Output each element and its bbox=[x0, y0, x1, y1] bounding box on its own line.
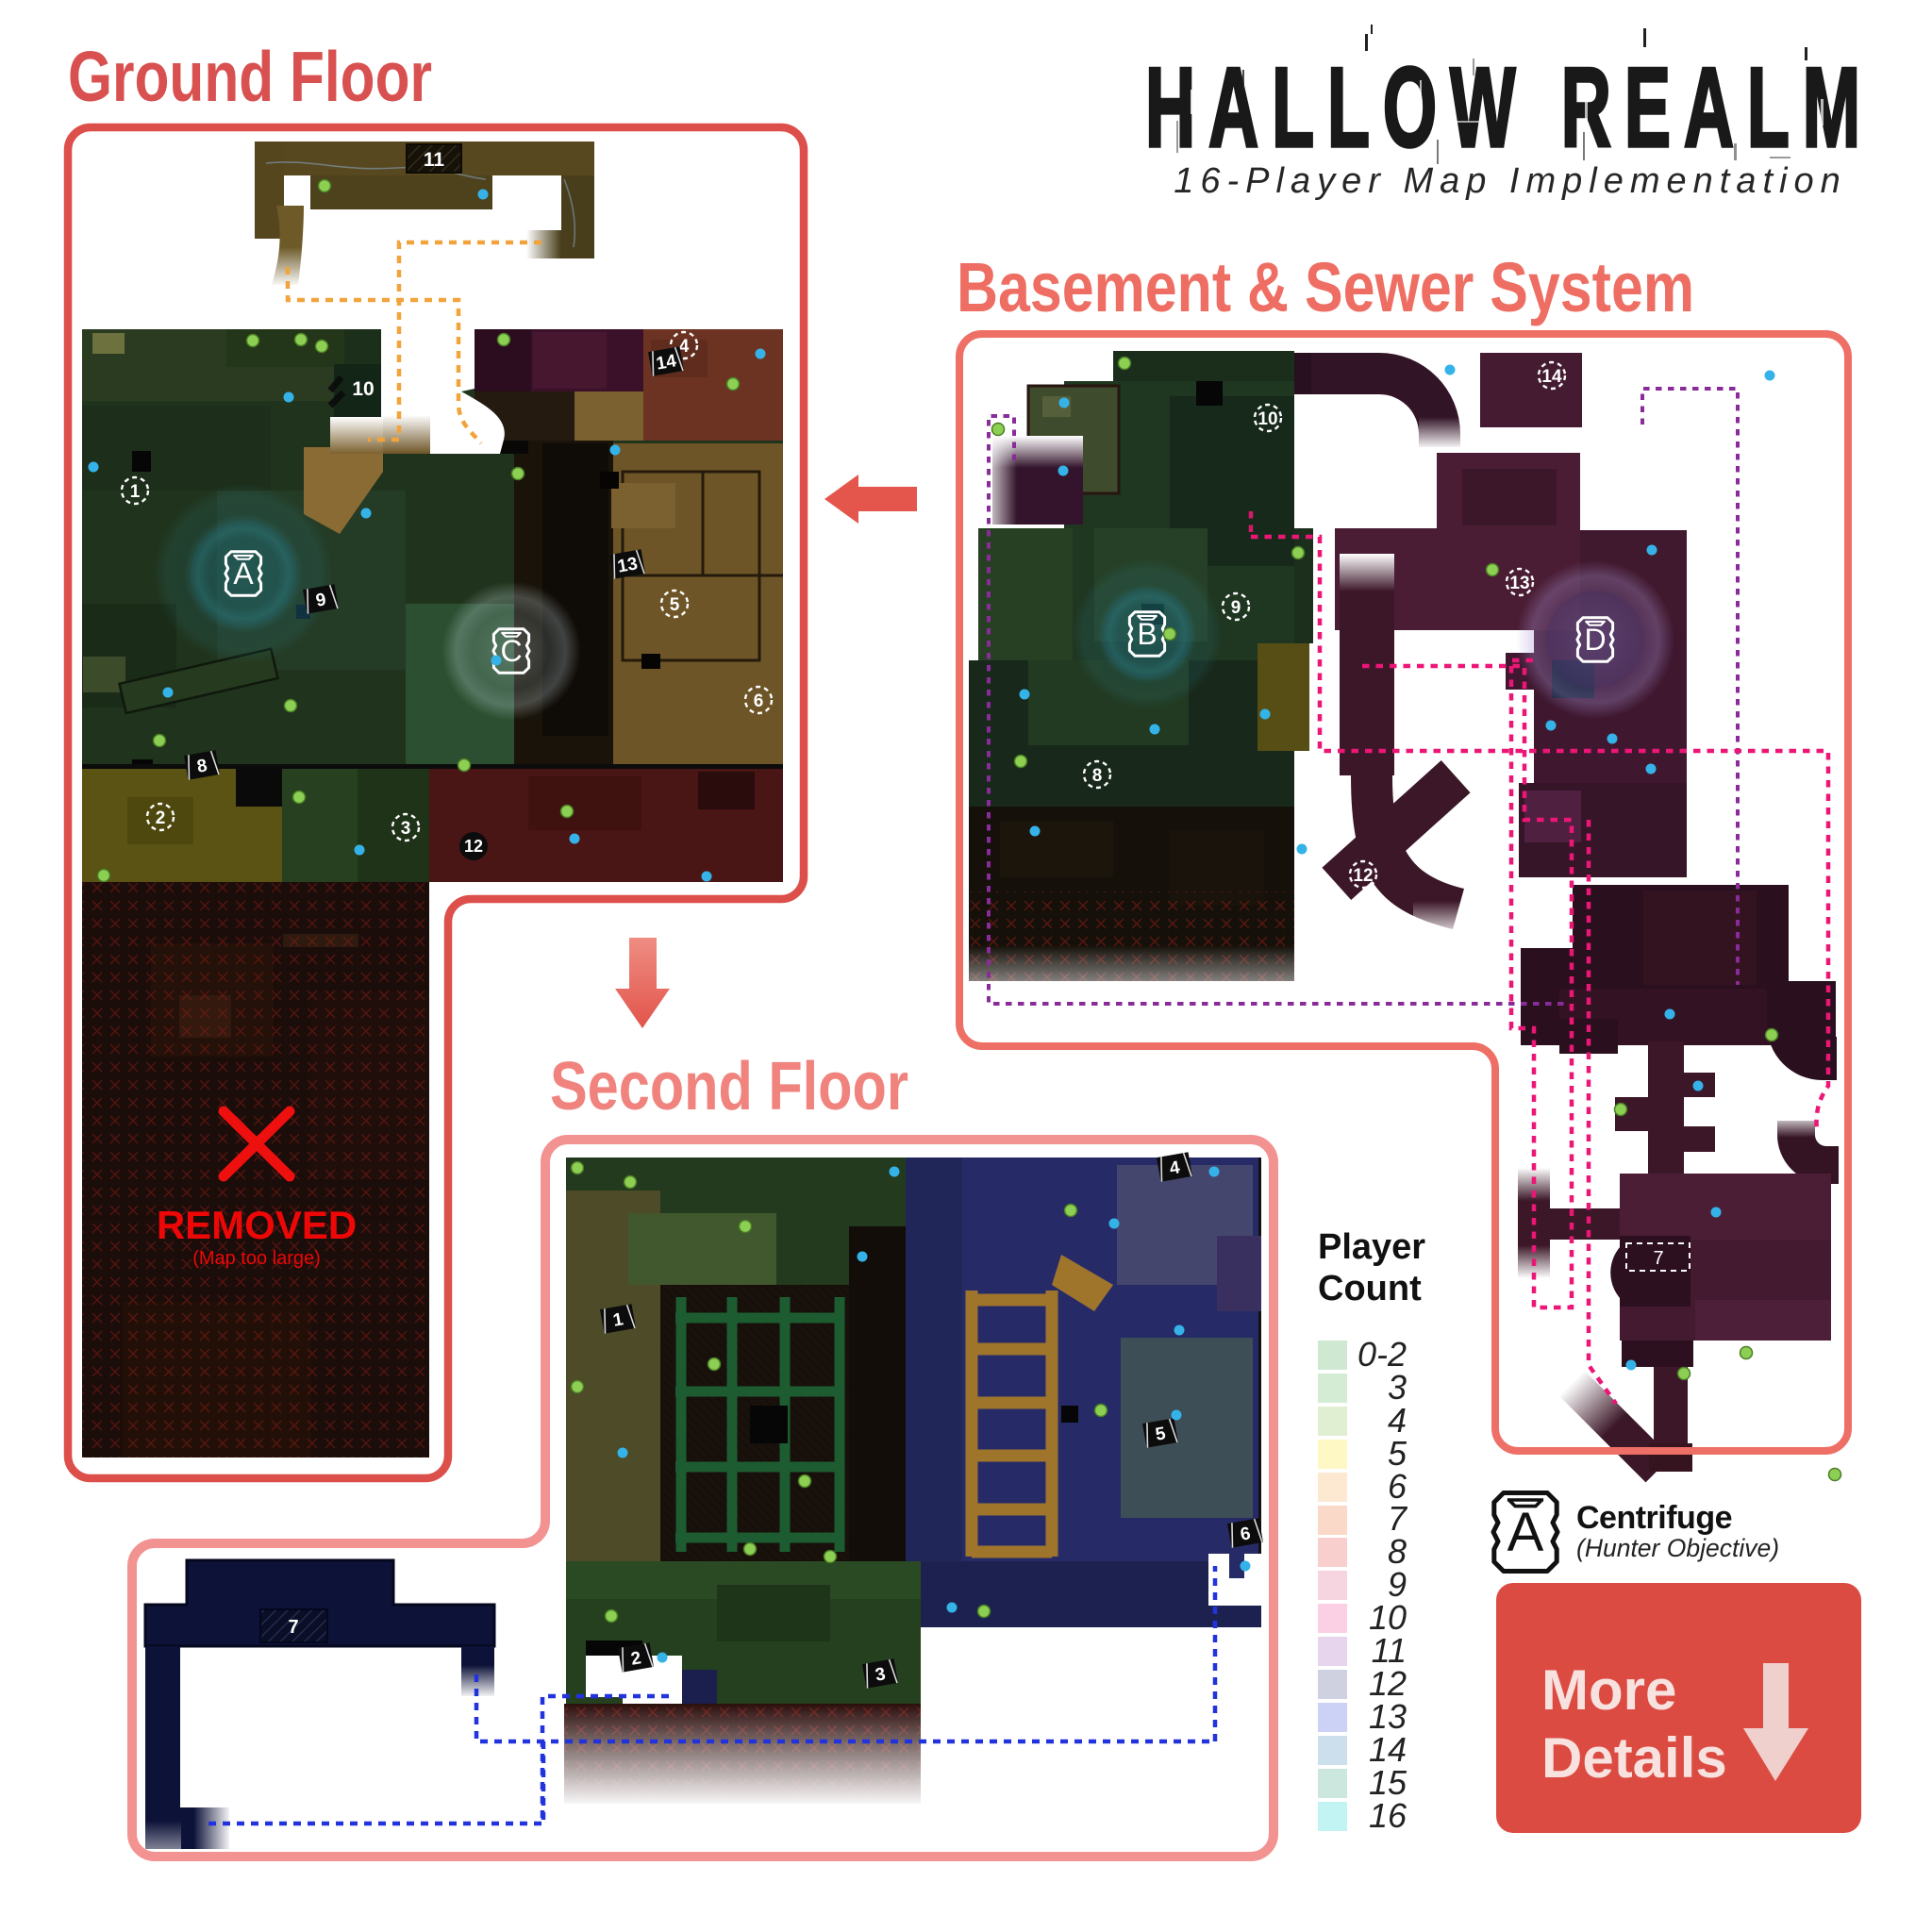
svg-text:10: 10 bbox=[352, 378, 374, 400]
svg-text:Basement & Sewer System: Basement & Sewer System bbox=[957, 248, 1694, 326]
svg-text:(Hunter Objective): (Hunter Objective) bbox=[1576, 1534, 1779, 1562]
svg-text:2: 2 bbox=[156, 808, 166, 828]
svg-text:Centrifuge: Centrifuge bbox=[1576, 1500, 1732, 1536]
svg-text:D: D bbox=[1584, 623, 1606, 657]
svg-text:REMOVED: REMOVED bbox=[157, 1203, 357, 1247]
svg-text:16: 16 bbox=[1369, 1796, 1407, 1835]
svg-text:HALLOW REALM: HALLOW REALM bbox=[1145, 45, 1874, 172]
svg-text:14: 14 bbox=[1541, 367, 1562, 387]
svg-text:9: 9 bbox=[1231, 598, 1241, 618]
svg-text:5: 5 bbox=[670, 595, 680, 615]
svg-text:Ground Floor: Ground Floor bbox=[68, 37, 432, 116]
svg-text:A: A bbox=[233, 557, 254, 591]
svg-text:B: B bbox=[1137, 617, 1157, 651]
svg-text:C: C bbox=[500, 634, 522, 668]
svg-text:Count: Count bbox=[1318, 1269, 1422, 1308]
svg-text:12: 12 bbox=[1353, 866, 1373, 886]
svg-text:3: 3 bbox=[401, 819, 411, 839]
svg-text:8: 8 bbox=[1092, 766, 1103, 786]
svg-text:16-Player Map Implementation: 16-Player Map Implementation bbox=[1174, 161, 1846, 201]
svg-text:Player: Player bbox=[1318, 1227, 1425, 1267]
svg-text:1: 1 bbox=[130, 482, 141, 502]
svg-text:13: 13 bbox=[1509, 574, 1529, 593]
svg-text:13: 13 bbox=[616, 554, 639, 576]
svg-text:14: 14 bbox=[655, 351, 678, 374]
svg-text:Details: Details bbox=[1541, 1726, 1727, 1790]
svg-text:Second Floor: Second Floor bbox=[550, 1049, 908, 1124]
svg-text:(Map too large): (Map too large) bbox=[192, 1248, 321, 1269]
svg-text:More: More bbox=[1541, 1658, 1676, 1722]
svg-text:10: 10 bbox=[1257, 409, 1277, 429]
svg-text:12: 12 bbox=[464, 837, 483, 856]
svg-text:6: 6 bbox=[754, 691, 764, 711]
svg-text:11: 11 bbox=[424, 149, 445, 171]
svg-text:7: 7 bbox=[1653, 1248, 1663, 1269]
svg-text:A: A bbox=[1507, 1502, 1544, 1563]
svg-text:7: 7 bbox=[288, 1617, 298, 1638]
